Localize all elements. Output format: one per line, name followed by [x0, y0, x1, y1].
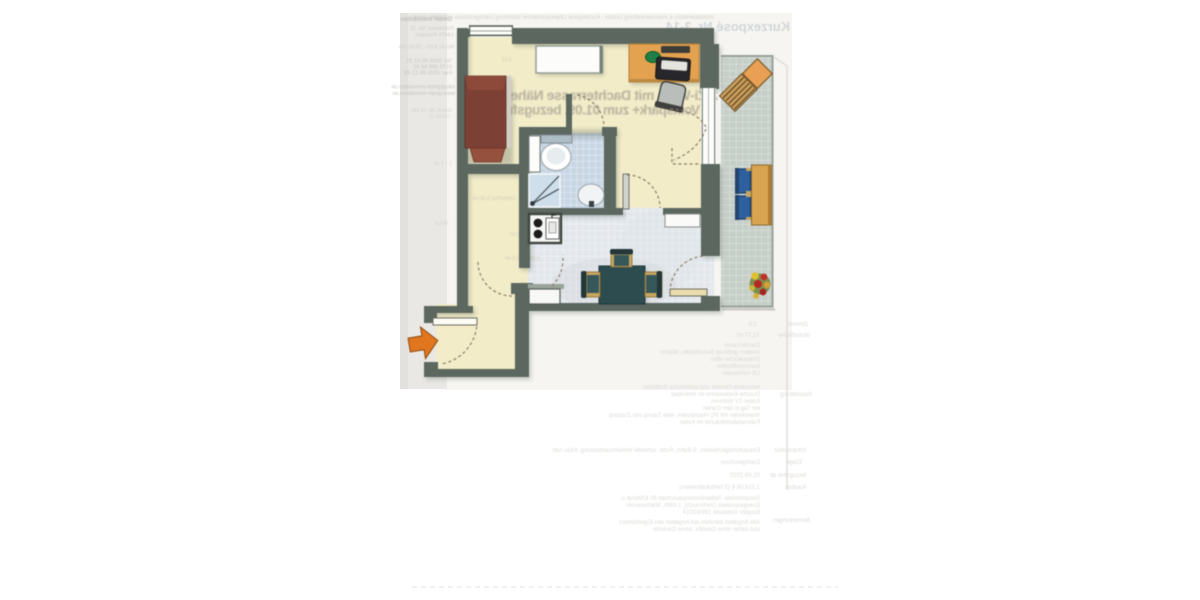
- svg-text:Kaution: Kaution: [786, 485, 806, 491]
- svg-text:Etage: Etage: [786, 460, 802, 466]
- svg-text:Wohnfläche: Wohnfläche: [778, 333, 810, 339]
- svg-text:modern geflieste Duschbäder, W: modern geflieste Duschbäder, Wanne: [659, 350, 760, 356]
- svg-text:und daher ohne Gewähr, keine G: und daher ohne Gewähr, keine Garantie: [653, 527, 760, 533]
- svg-text:info@gmbh-immobilien.de: info@gmbh-immobilien.de: [391, 85, 455, 91]
- svg-text:Ausstattung: Ausstattung: [780, 392, 812, 398]
- svg-text:1 + 1 ab: 1 + 1 ab: [434, 161, 452, 167]
- svg-text:2,5: 2,5: [748, 322, 757, 328]
- svg-text:ein Tag in den Garten: ein Tag in den Garten: [703, 406, 760, 412]
- svg-text:01.09.2020: 01.09.2020: [729, 473, 760, 479]
- svg-text:Einbauküche offen: Einbauküche offen: [710, 357, 760, 363]
- svg-text:Energieausweis (Verbrauch): 1: Energieausweis (Verbrauch): 1 kWh, Warmw…: [626, 503, 760, 509]
- svg-text:bezugsfrei ab: bezugsfrei ab: [769, 473, 806, 479]
- svg-text:GmbH Immobilien: GmbH Immobilien: [400, 17, 452, 23]
- svg-text:72,77 m²: 72,77 m²: [736, 333, 760, 339]
- svg-text:Fax: 0331-96 12 89: Fax: 0331-96 12 89: [404, 71, 452, 77]
- svg-text:Infrastruktur: Infrastruktur: [774, 448, 806, 454]
- svg-text:www.gmbh-immobilien.de: www.gmbh-immobilien.de: [392, 91, 456, 97]
- svg-text:renovierte Fenster und elektri: renovierte Fenster und elektrische Rolll…: [643, 385, 760, 391]
- svg-text:Warmkeller mit PC-Hausboden, e: Warmkeller mit PC-Hausboden, eine Sauna …: [609, 413, 760, 419]
- svg-text:Kabel-TV Wohnen: Kabel-TV Wohnen: [711, 399, 760, 405]
- svg-text:Dachgeschoss: Dachgeschoss: [721, 460, 760, 466]
- svg-text:Kunststoffboden: Kunststoffboden: [717, 364, 760, 370]
- svg-text:Einkaufsmöglichkeiten, S-Bahn,: Einkaufsmöglichkeiten, S-Bahn, Ärzte, sc…: [553, 447, 760, 454]
- svg-text:Fahrradabstellräume im Keller: Fahrradabstellräume im Keller: [680, 420, 760, 426]
- svg-text:Gesamtmiete: Nebenkostenpausch: Gesamtmiete: Nebenkostenpauschale 80 €/M…: [620, 496, 760, 502]
- svg-text:Nutzfl.: Nutzfl.: [434, 221, 448, 227]
- svg-text:Potsdamer Str. 31: Potsdamer Str. 31: [410, 26, 454, 32]
- svg-text:Lift vorhanden: Lift vorhanden: [722, 371, 760, 377]
- svg-text:2-Zi-Whg. mit Dachterrasse Näh: 2-Zi-Whg. mit Dachterrasse Nähe: [510, 87, 718, 103]
- svg-text:Dusche-Badewanne im Innenbad: Dusche-Badewanne im Innenbad: [671, 392, 760, 398]
- svg-text:Dachterrasse: Dachterrasse: [724, 343, 760, 349]
- svg-text:Baujahr Gebäude 1994/2014: Baujahr Gebäude 1994/2014: [682, 510, 760, 516]
- svg-text:Zimmer: Zimmer: [788, 322, 808, 328]
- svg-text:Bemerkungen: Bemerkungen: [773, 518, 810, 524]
- svg-text:2,51: 2,51: [501, 57, 512, 63]
- svg-text:14476 Potsdam: 14476 Potsdam: [415, 33, 454, 39]
- svg-text:Mo-Fr 9:00 - 18:00 Uhr: Mo-Fr 9:00 - 18:00 Uhr: [398, 45, 454, 51]
- svg-text:Objekt 22: Objekt 22: [428, 114, 450, 120]
- svg-text:1.314,06 € (3 Nettokaltmieten): 1.314,06 € (3 Nettokaltmieten): [679, 485, 760, 491]
- svg-text:Alle Angaben beruhen auf Angab: Alle Angaben beruhen auf Angaben des Eig…: [619, 520, 760, 526]
- svg-text:Diele/Flur 5,40 m²: Diele/Flur 5,40 m²: [471, 196, 515, 202]
